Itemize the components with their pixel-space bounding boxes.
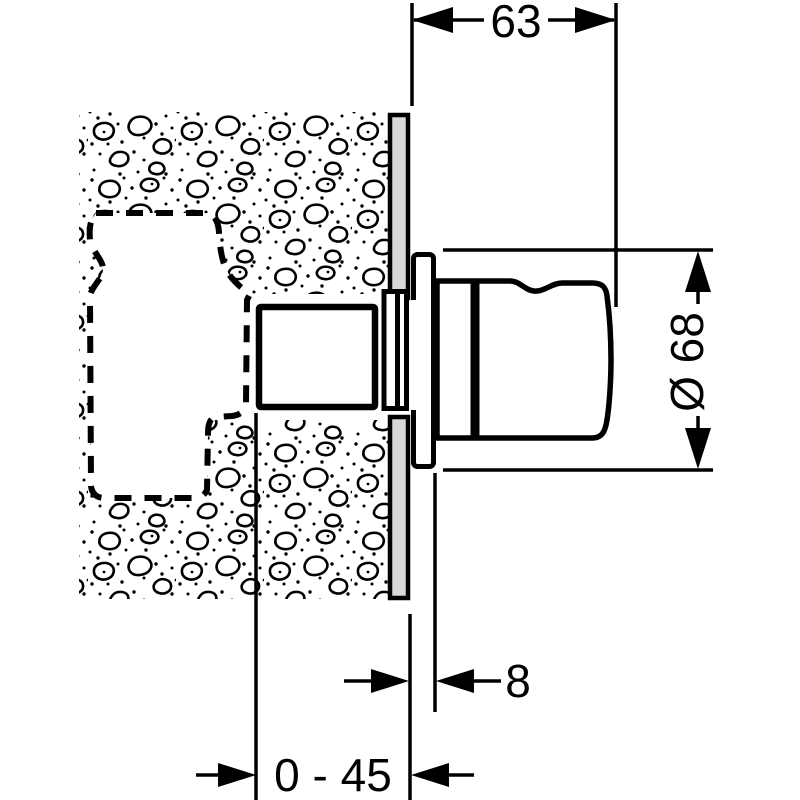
arrow-left-icon — [411, 763, 449, 787]
dimension-diameter-label: Ø 68 — [661, 312, 713, 412]
valve-stem-sleeve — [384, 292, 407, 409]
wall-plate-upper — [390, 115, 408, 298]
arrow-left-icon — [412, 7, 453, 33]
wall-plate-lower — [390, 417, 408, 598]
handle-outline — [437, 281, 611, 438]
arrow-right-icon — [575, 7, 616, 33]
dimension-8-label: 8 — [505, 655, 531, 707]
concealed-valve-body — [259, 307, 375, 407]
installation-dimension-diagram: 63 Ø 68 8 0 - 45 — [0, 0, 800, 800]
arrow-right-icon — [218, 763, 256, 787]
dimension-63-label: 63 — [490, 0, 541, 47]
arrow-right-icon — [371, 669, 409, 693]
arrow-down-icon — [685, 428, 711, 469]
technical-drawing-page: 63 Ø 68 8 0 - 45 — [0, 0, 800, 800]
dimension-0-45-label: 0 - 45 — [274, 749, 392, 800]
arrow-up-icon — [685, 251, 711, 292]
handle — [437, 281, 611, 438]
arrow-left-icon — [436, 669, 474, 693]
dimension-63 — [412, 3, 616, 307]
